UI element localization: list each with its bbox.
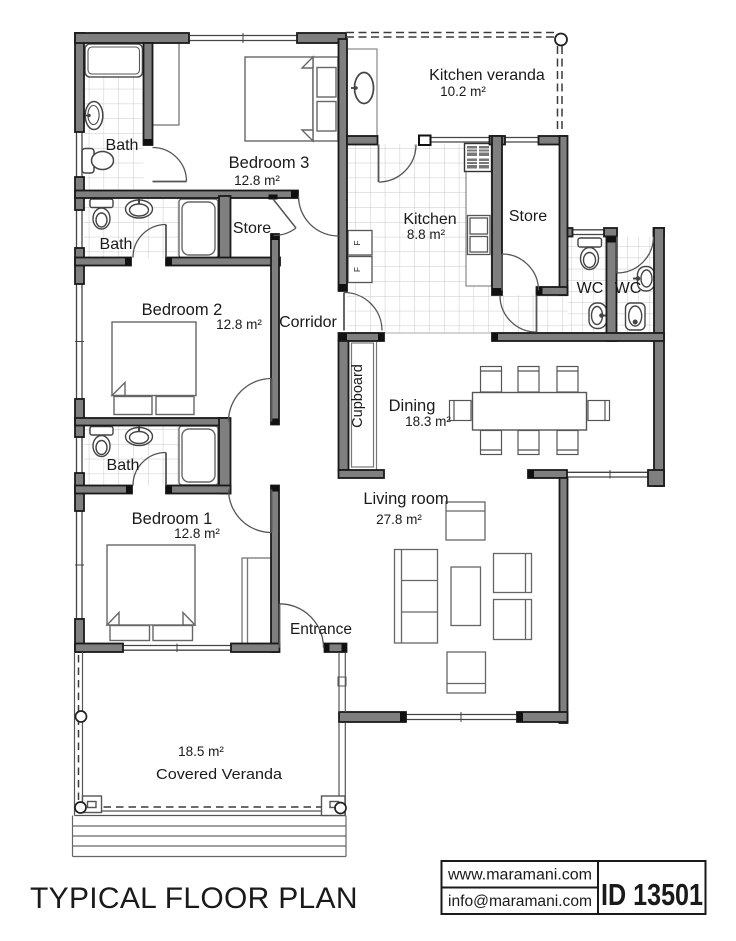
svg-text:Covered Veranda: Covered Veranda xyxy=(156,766,283,783)
svg-text:10.2 m²: 10.2 m² xyxy=(440,84,486,99)
svg-text:info@maramani.com: info@maramani.com xyxy=(448,893,592,910)
svg-text:F: F xyxy=(353,240,362,245)
svg-text:Bedroom 3: Bedroom 3 xyxy=(229,154,310,172)
svg-text:18.3 m²: 18.3 m² xyxy=(405,414,451,429)
svg-text:Bath: Bath xyxy=(107,457,140,474)
svg-text:Entrance: Entrance xyxy=(290,621,352,638)
svg-text:ID 13501: ID 13501 xyxy=(601,877,703,912)
svg-text:Living room: Living room xyxy=(363,490,448,508)
svg-text:Kitchen: Kitchen xyxy=(403,211,456,228)
svg-text:TYPICAL FLOOR PLAN: TYPICAL FLOOR PLAN xyxy=(30,882,358,915)
svg-text:Bath: Bath xyxy=(100,236,133,253)
svg-text:12.8 m²: 12.8 m² xyxy=(174,526,220,541)
svg-text:27.8 m²: 27.8 m² xyxy=(376,512,422,527)
svg-text:Bath: Bath xyxy=(106,137,139,154)
svg-text:F: F xyxy=(353,267,362,272)
svg-text:www.maramani.com: www.maramani.com xyxy=(447,867,592,884)
svg-text:18.5 m²: 18.5 m² xyxy=(178,744,224,759)
svg-text:Corridor: Corridor xyxy=(279,314,337,331)
svg-text:12.8 m²: 12.8 m² xyxy=(216,317,262,332)
svg-text:12.8 m²: 12.8 m² xyxy=(234,173,280,188)
svg-text:Store: Store xyxy=(233,220,271,237)
svg-text:WC: WC xyxy=(615,280,642,297)
svg-text:Dining: Dining xyxy=(389,397,436,415)
svg-text:Cupboard: Cupboard xyxy=(350,364,366,428)
svg-text:8.8 m²: 8.8 m² xyxy=(407,227,446,242)
svg-text:Bedroom 2: Bedroom 2 xyxy=(142,301,223,319)
svg-text:WC: WC xyxy=(577,280,604,297)
svg-text:Kitchen veranda: Kitchen veranda xyxy=(429,67,545,84)
svg-text:Store: Store xyxy=(509,208,547,225)
